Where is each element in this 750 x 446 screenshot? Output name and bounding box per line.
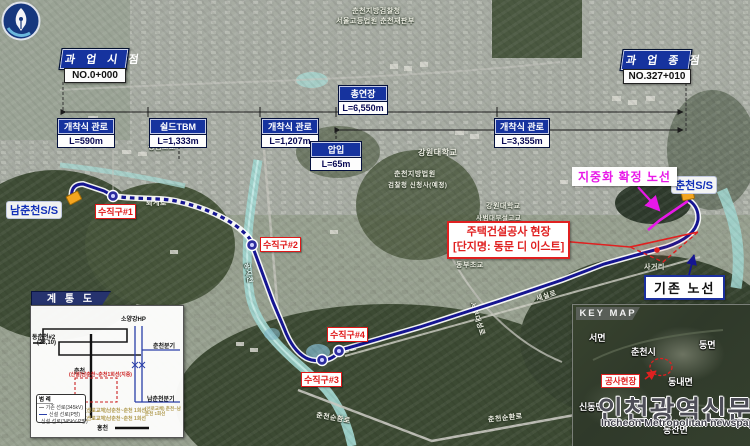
section-open-cut-1: 개착식 관로 L=590m bbox=[57, 118, 115, 148]
project-start-station: NO.0+000 bbox=[64, 68, 126, 83]
keymap-place: 서면 bbox=[589, 331, 606, 344]
section-name: 쉴드TBM bbox=[149, 118, 207, 135]
project-start-header: 과 업 시 점 bbox=[58, 48, 129, 70]
section-length: L=65m bbox=[310, 158, 362, 171]
shaft-label-4: 수직구#4 bbox=[327, 327, 368, 342]
site-name: 주택건설공사 현장 bbox=[453, 225, 564, 240]
section-name: 압입 bbox=[310, 141, 362, 158]
legend-item: 신설 선로(345kV-P망) bbox=[41, 418, 88, 425]
construction-site-callout: 주택건설공사 현장 [단지명: 동문 디 이스트] bbox=[447, 221, 570, 259]
diagram-node-label: 남춘천분기 bbox=[147, 394, 175, 403]
section-name: 개착식 관로 bbox=[261, 118, 319, 135]
section-shield-tbm: 쉴드TBM L=1,333m bbox=[149, 118, 207, 148]
site-complex-name: [단지명: 동문 디 이스트] bbox=[453, 240, 564, 255]
legend-item: 신설 선로(P망) bbox=[49, 411, 80, 418]
system-diagram-body: 동춘천#2 (23,10) 소양강HP 춘천분기 춘천 남춘천 남춘천분기 홍천… bbox=[30, 305, 184, 438]
keymap-place: 춘천시 bbox=[631, 345, 656, 358]
section-length: L=3,355m bbox=[494, 135, 550, 148]
diagram-node-label: 춘천분기 bbox=[153, 341, 175, 350]
substation-label-namchuncheon: 남춘천S/S bbox=[6, 201, 62, 219]
substation-label-chuncheon: 춘천S/S bbox=[671, 176, 717, 194]
keymap-place: 동내면 bbox=[668, 375, 693, 388]
underground-route-callout: 지중화 확정 노선 bbox=[572, 167, 677, 186]
shaft-label-3: 수직구#3 bbox=[301, 372, 342, 387]
project-end-station: NO.327+010 bbox=[623, 69, 691, 84]
section-length: L=1,333m bbox=[149, 135, 207, 148]
total-length-box: 총연장 L=6,550m bbox=[338, 85, 388, 115]
keymap-site-arrow bbox=[645, 371, 656, 379]
section-pipe-jacking: 압입 L=65m bbox=[310, 141, 362, 171]
section-open-cut-3: 개착식 관로 L=3,355m bbox=[494, 118, 550, 148]
shaft-label-1: 수직구#1 bbox=[95, 204, 136, 219]
existing-route-callout: 기존 노선 bbox=[644, 275, 725, 300]
existing-route-arrow bbox=[689, 255, 694, 275]
total-length: L=6,550m bbox=[338, 102, 388, 115]
section-name: 개착식 관로 bbox=[57, 118, 115, 135]
project-end-header: 과 업 종 점 bbox=[619, 49, 692, 71]
diagram-replace-note: (선로교체)남춘천~춘천 1회선 bbox=[85, 415, 146, 422]
keymap-site-label: 공사현장 bbox=[601, 374, 640, 388]
substation-marker-namchuncheon bbox=[66, 191, 82, 205]
legend-swatch bbox=[39, 407, 44, 408]
diagram-replace-note: (선로교체) 춘천~남춘천 1회선 bbox=[145, 406, 181, 417]
keymap-place: 동면 bbox=[699, 338, 716, 351]
shaft-label-2: 수직구#2 bbox=[260, 237, 301, 252]
diagram-node-label: 소양강HP bbox=[121, 314, 146, 323]
diagram-node-label: (23,10) bbox=[37, 340, 56, 346]
legend-item: 기존 선로(345kV) bbox=[46, 404, 83, 411]
diagram-new-line-note: (신설)남춘천~춘천1회선(지중) bbox=[69, 371, 132, 378]
newspaper-logo-icon bbox=[0, 0, 42, 42]
section-length: L=590m bbox=[57, 135, 115, 148]
section-name: 개착식 관로 bbox=[494, 118, 550, 135]
legend-title: 범 례 bbox=[37, 395, 53, 404]
total-name: 총연장 bbox=[338, 85, 388, 102]
diagram-legend: 범 례 기존 선로(345kV) 신설 선로(P망) 신설 선로(345kV-P… bbox=[36, 394, 86, 423]
diagram-replace-note: (선로교체)남춘천~춘천 1회선 bbox=[85, 407, 146, 414]
diagram-node-label: 홍천 bbox=[97, 423, 108, 432]
system-diagram-inset: 계 통 도 동춘천#2 (23,10) 소양강HP 춘천분기 춘천 남춘천 남춘… bbox=[30, 291, 184, 439]
legend-swatch bbox=[39, 414, 47, 415]
route-map: 춘천지방검찰청 서울고등법원 춘천재판부 강원대학교 춘천지방법원 검찰청 신청… bbox=[0, 0, 750, 446]
watermark-english: Incheon Metropolitan newspaper bbox=[601, 417, 750, 429]
